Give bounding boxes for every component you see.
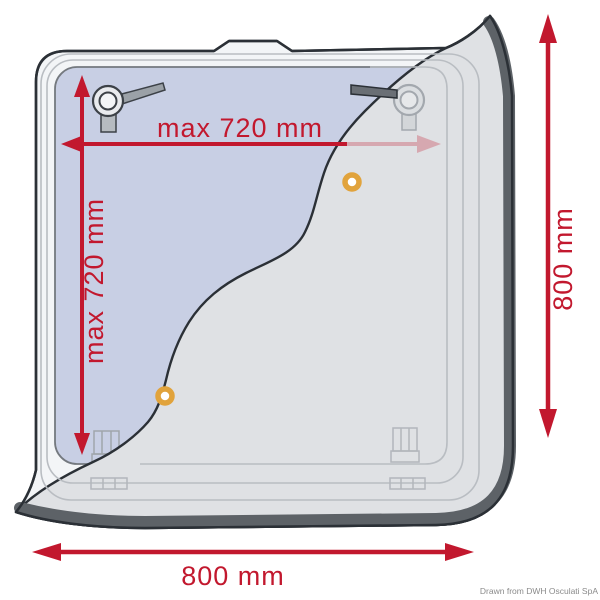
- label-overall-height: 800 mm: [548, 207, 578, 311]
- hatch-dimension-diagram: max 720 mm max 720 mm 800 mm 800 mm Draw…: [0, 0, 600, 600]
- grommet-icon-upper: [345, 175, 359, 189]
- diagram-canvas: max 720 mm max 720 mm 800 mm 800 mm Draw…: [0, 0, 600, 600]
- label-opening-width: max 720 mm: [157, 113, 323, 143]
- grommet-icon-lower: [158, 389, 172, 403]
- credit-text: Drawn from DWH Osculati SpA: [480, 586, 598, 596]
- dim-arrow-overall-width: [32, 543, 474, 561]
- label-opening-height: max 720 mm: [79, 198, 109, 364]
- label-overall-width: 800 mm: [181, 561, 285, 591]
